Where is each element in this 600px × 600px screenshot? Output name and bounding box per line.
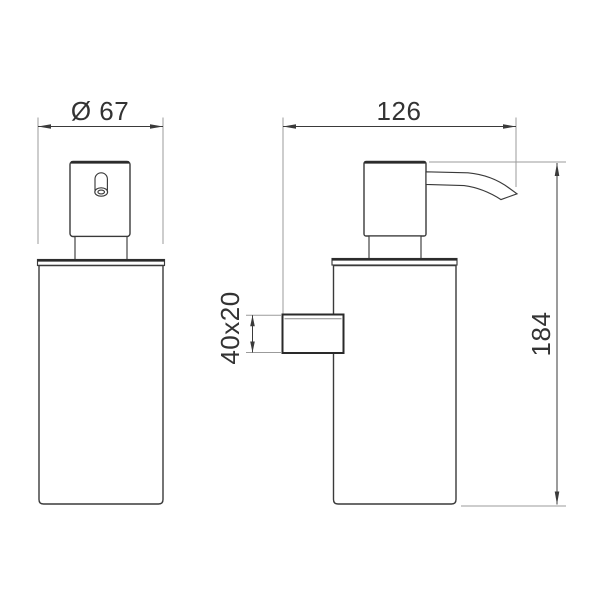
side-view: 126 184 xyxy=(215,96,566,506)
dim-bracket: 40x20 xyxy=(215,291,281,364)
spout xyxy=(426,172,517,200)
dim-arrowhead xyxy=(503,124,516,129)
front-view: Ø 67 xyxy=(38,96,165,504)
dim-arrowhead xyxy=(250,342,255,353)
dim-arrowhead xyxy=(150,124,163,129)
pump-head-side xyxy=(364,162,426,237)
pump-neck-front xyxy=(75,237,127,261)
dim-label-front-diameter: Ø 67 xyxy=(71,96,129,126)
nozzle-opening xyxy=(98,190,105,194)
dispenser-dimension-drawing: Ø 67 126 xyxy=(0,0,600,600)
dim-arrowhead xyxy=(555,163,560,176)
dim-arrowhead xyxy=(283,124,296,129)
bottle-body-side xyxy=(334,266,457,505)
bottle-body-front xyxy=(39,266,163,505)
wall-bracket-outline xyxy=(283,315,344,354)
pump-neck-side xyxy=(369,236,421,260)
technical-drawing-canvas: Ø 67 126 xyxy=(0,0,600,600)
dim-label-bracket: 40x20 xyxy=(215,291,245,364)
dim-label-depth: 126 xyxy=(377,96,422,126)
wall-bracket xyxy=(283,315,344,354)
dim-label-height: 184 xyxy=(526,312,556,357)
dim-arrowhead xyxy=(38,124,51,129)
dim-arrowhead xyxy=(250,315,255,326)
dim-arrowhead xyxy=(555,492,560,505)
pump-nozzle-front xyxy=(95,173,108,196)
